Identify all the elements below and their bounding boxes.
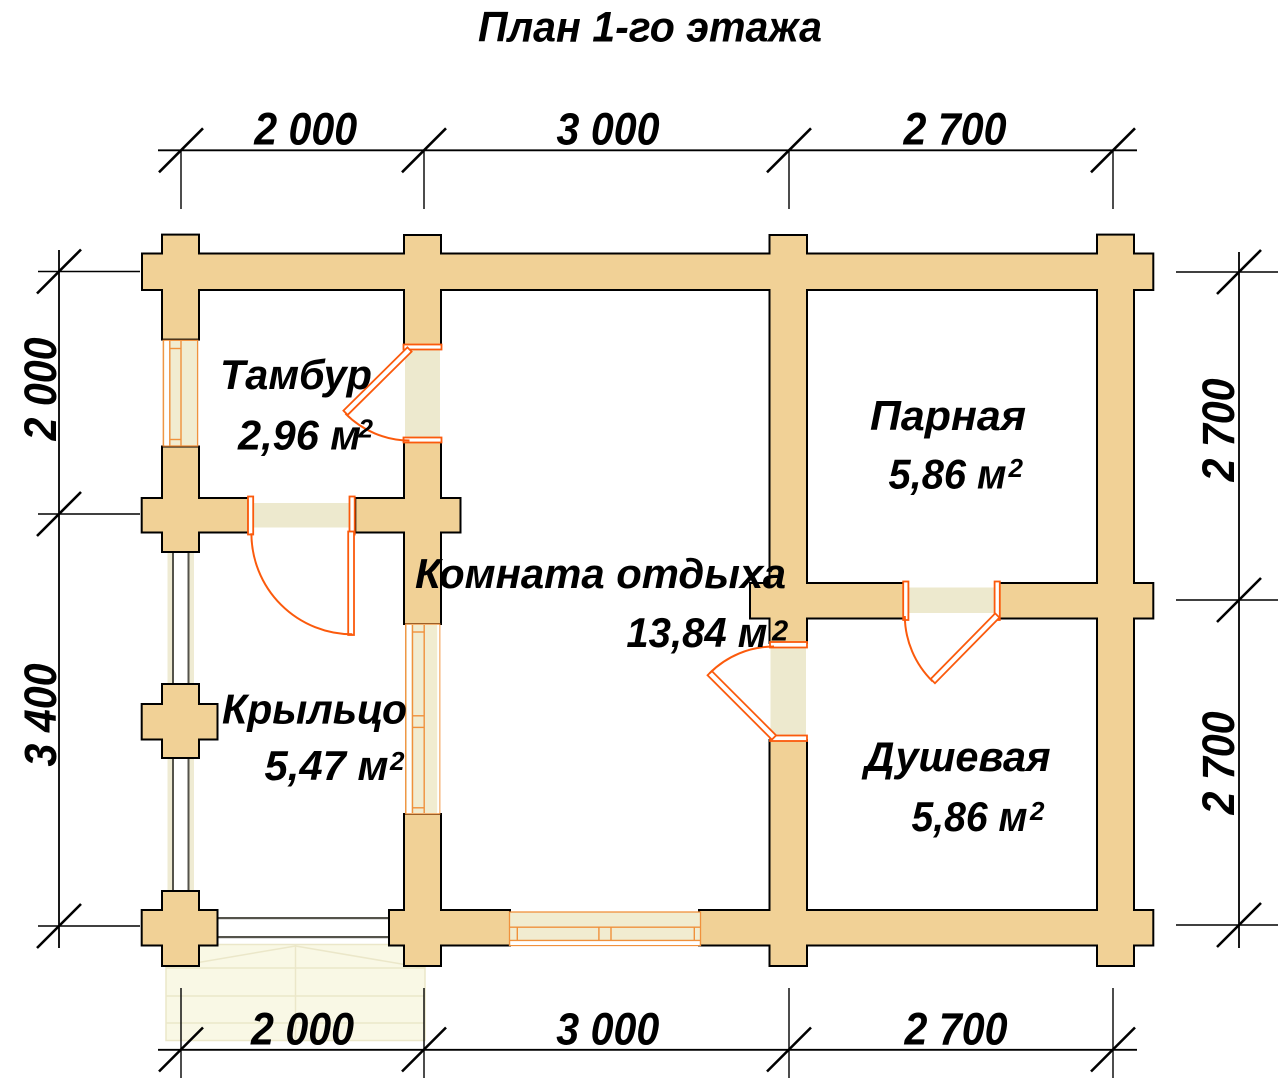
svg-text:2 000: 2 000: [253, 104, 357, 155]
svg-text:2: 2: [1029, 796, 1045, 826]
svg-text:2 700: 2 700: [904, 1003, 1008, 1054]
svg-text:Парная: Парная: [870, 392, 1026, 439]
svg-text:5,47 м: 5,47 м: [265, 742, 389, 789]
svg-text:13,84 м: 13,84 м: [626, 609, 767, 656]
svg-text:5,86 м: 5,86 м: [912, 793, 1028, 840]
svg-text:2,96 м: 2,96 м: [237, 412, 361, 459]
svg-text:2 700: 2 700: [1193, 712, 1244, 816]
svg-text:2: 2: [389, 746, 405, 776]
svg-text:5,86 м: 5,86 м: [889, 451, 1007, 498]
svg-text:Комната отдыха: Комната отдыха: [415, 550, 786, 597]
svg-text:3 400: 3 400: [15, 664, 66, 767]
svg-text:2: 2: [771, 616, 788, 648]
svg-text:Крыльцо: Крыльцо: [222, 686, 407, 733]
svg-text:2 000: 2 000: [250, 1003, 354, 1054]
svg-text:2: 2: [358, 414, 374, 444]
svg-text:2: 2: [1008, 453, 1024, 483]
svg-text:Душевая: Душевая: [862, 733, 1051, 780]
svg-text:План 1-го этажа: План 1-го этажа: [478, 4, 822, 52]
svg-text:Тамбур: Тамбур: [220, 351, 372, 398]
svg-text:2 000: 2 000: [15, 338, 66, 442]
svg-text:3 000: 3 000: [557, 104, 660, 155]
svg-text:2 700: 2 700: [1193, 379, 1244, 483]
svg-text:3 000: 3 000: [556, 1003, 659, 1054]
svg-text:2 700: 2 700: [903, 104, 1007, 155]
